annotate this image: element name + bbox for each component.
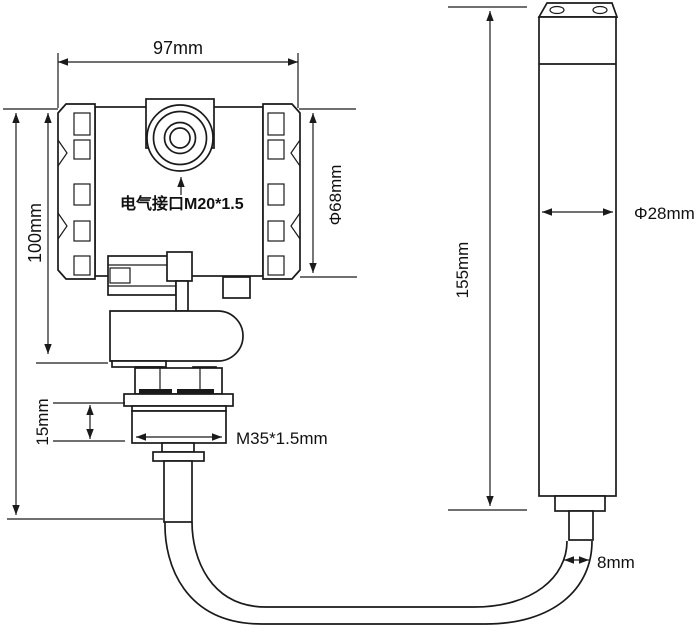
label-head-height: 100mm [25,203,45,263]
side-cap-right [263,104,300,279]
dim-head-diameter: Φ68mm [299,109,357,277]
stem [164,461,192,522]
probe-cable-gland [569,511,593,540]
dim-head-height: 100mm [25,113,48,354]
label-cable-diameter: 8mm [597,553,635,572]
label-probe-length: 155mm [453,242,472,299]
label-electrical-port: 电气接口M20*1.5 [120,194,244,213]
label-thread-spec: M35*1.5mm [236,429,328,448]
probe-body [539,17,616,496]
dimension-drawing: 97mm 100mm Φ68mm 电气接口M20*1.5 [0,0,700,629]
dim-thread-length: 15mm [33,398,125,445]
dim-cable-diameter: 8mm [564,553,635,572]
dim-probe-length: 155mm [448,7,527,510]
label-probe-diameter: Φ28mm [634,204,695,223]
probe-top-cap [539,3,617,17]
flange [124,394,233,406]
side-cap-left [58,104,95,279]
callout-electrical-port: 电气接口M20*1.5 [120,177,244,213]
technical-drawing-svg: 97mm 100mm Φ68mm 电气接口M20*1.5 [0,0,700,629]
dim-head-width: 97mm [58,38,298,108]
process-connection [124,368,233,522]
transmitter-head [58,99,300,522]
cable [165,522,592,624]
lower-bracket [108,252,250,311]
thread-body [132,411,226,443]
electrical-port [146,99,214,171]
lower-housing [110,311,243,373]
submersible-probe [539,3,617,540]
label-thread-length: 15mm [33,398,52,445]
label-head-diameter: Φ68mm [326,165,345,226]
label-head-width: 97mm [153,38,203,58]
